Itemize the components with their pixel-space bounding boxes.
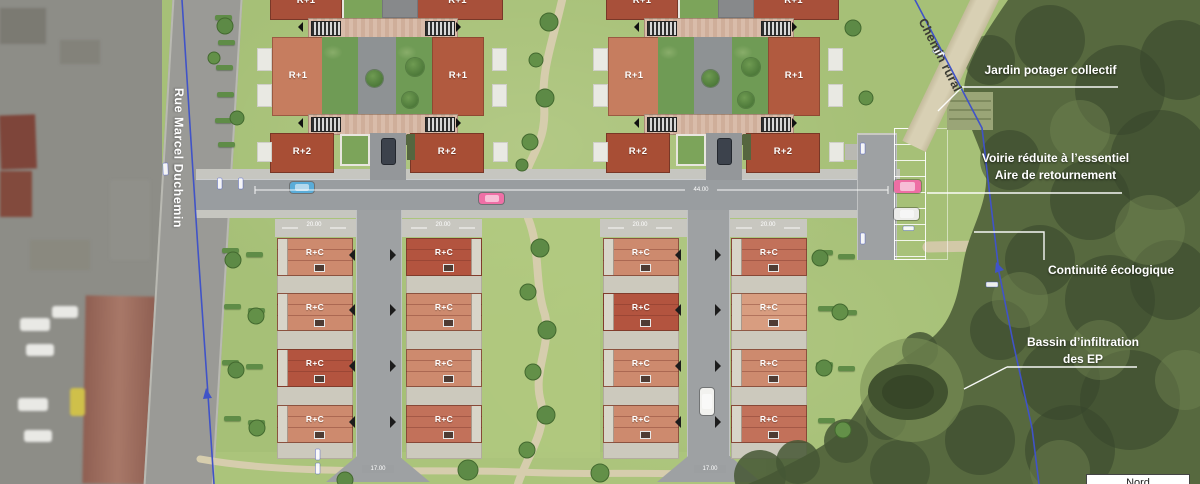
trees [208,13,873,484]
annotation-basin: Bassin d’infiltration des EP [1008,334,1158,368]
site-plan: R+1 R+1 R+1 R+1 R+2 R+2 [0,0,1200,484]
boundary-arrowheads [203,262,1004,399]
dimension-lines [255,186,888,228]
annotation-road-note-line2: Aire de retournement [958,167,1153,184]
street-name-rue-marcel-duchemin: Rue Marcel Duchemin [171,88,186,228]
dimension-road-end: 17.00 [362,465,394,473]
dimension-road-end: 17.00 [694,465,726,473]
annotation-garden: Jardin potager collectif [968,62,1133,79]
north-arrow-box: Nord [1086,474,1190,484]
dimension-main-road: 44.00 [685,186,717,194]
dimension-house-block: 20.00 [752,221,784,229]
annotation-basin-line2: des EP [1008,351,1158,368]
annotation-road-note-line1: Voirie réduite à l’essentiel [958,150,1153,167]
north-label: Nord [1126,477,1150,484]
dimension-house-block: 20.00 [427,221,459,229]
dimension-house-block: 20.00 [298,221,330,229]
annotation-ecology: Continuité écologique [1048,262,1200,279]
annotation-basin-line1: Bassin d’infiltration [1008,334,1158,351]
dimension-house-block: 20.00 [624,221,656,229]
property-boundary-line [182,0,1039,484]
annotation-road-note: Voirie réduite à l’essentiel Aire de ret… [958,150,1153,184]
boundary-dimension-markers [163,47,998,474]
